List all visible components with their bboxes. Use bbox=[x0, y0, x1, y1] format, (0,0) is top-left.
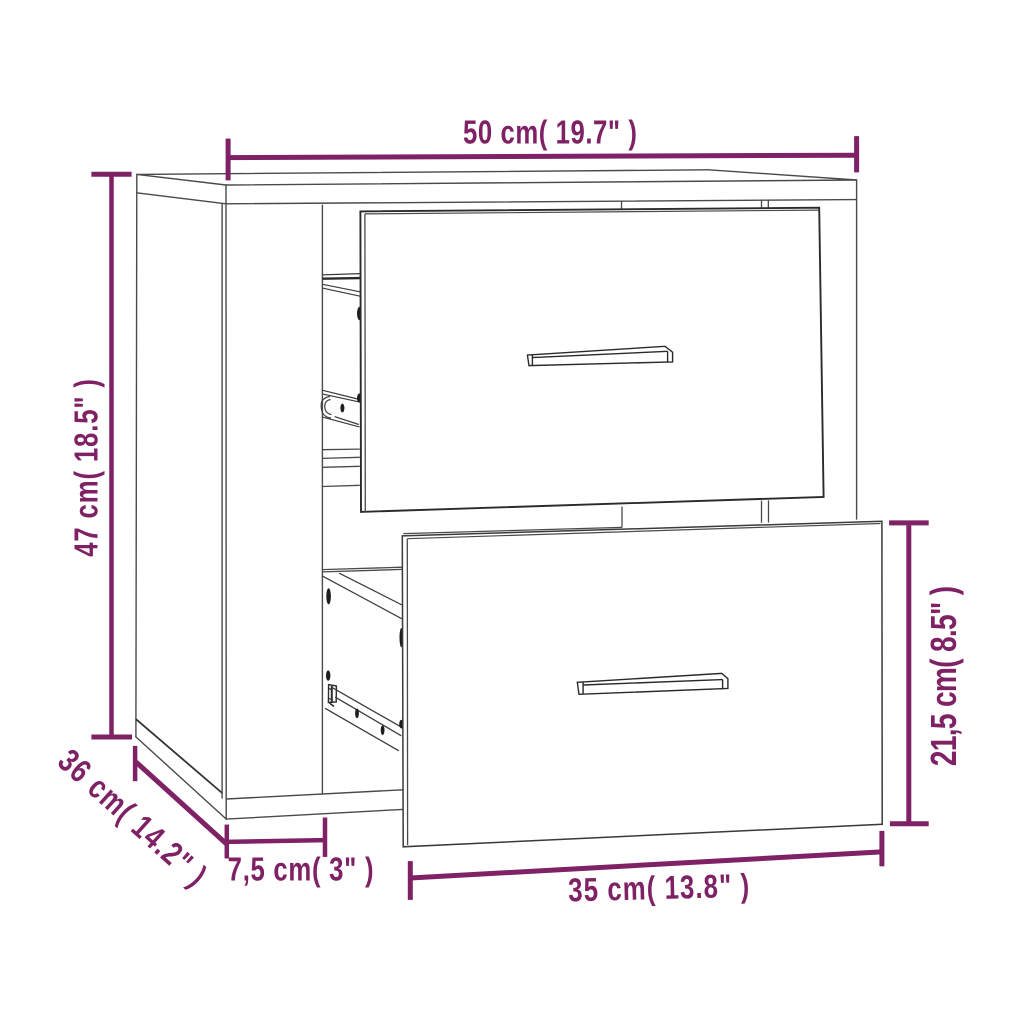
svg-text:50 cm( 19.7" ): 50 cm( 19.7" ) bbox=[463, 115, 637, 152]
svg-text:35 cm( 13.8" ): 35 cm( 13.8" ) bbox=[568, 868, 750, 910]
svg-text:21,5 cm( 8.5" ): 21,5 cm( 8.5" ) bbox=[924, 586, 964, 766]
svg-text:7,5 cm( 3" ): 7,5 cm( 3" ) bbox=[228, 852, 374, 889]
svg-text:47 cm( 18.5" ): 47 cm( 18.5" ) bbox=[69, 379, 106, 557]
